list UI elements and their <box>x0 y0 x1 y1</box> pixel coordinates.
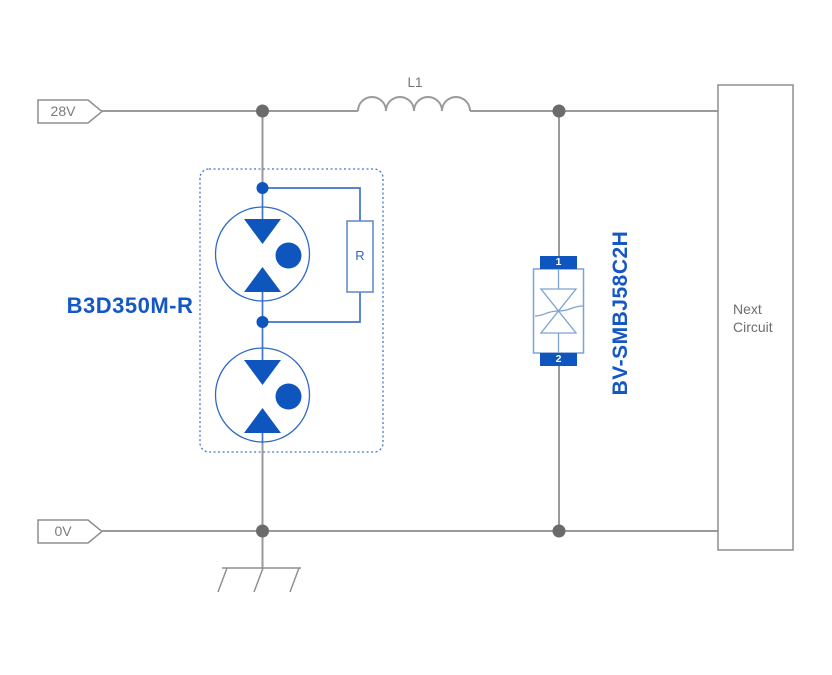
junction-dot <box>553 525 566 538</box>
gdt-dashed-outline <box>200 169 383 452</box>
gdt-node-dot-middle <box>257 316 269 328</box>
junction-dot <box>256 525 269 538</box>
ground-hatch-3 <box>290 568 299 592</box>
ground-hatch-1 <box>218 568 227 592</box>
tvs-part-number-label: BV-SMBJ58C2H <box>609 223 633 403</box>
spark-gap-symbol-1 <box>216 207 310 301</box>
resistor-wire-bottom <box>267 292 360 322</box>
inductor-label: L1 <box>399 75 431 90</box>
electrode-triangle-down <box>244 360 281 385</box>
inductor-symbol <box>358 97 470 111</box>
electrode-triangle-down <box>244 219 281 244</box>
circuit-schematic: 28V 0V L1 B3D350M-R R BV-SMBJ58C2H 1 2 N… <box>0 0 832 675</box>
tvs-diode-component <box>534 256 584 366</box>
next-circuit-label: Next Circuit <box>733 301 791 336</box>
resistor-label: R <box>347 248 373 263</box>
resistor-wire-top <box>267 188 360 221</box>
gdt-part-number-label: B3D350M-R <box>50 293 210 319</box>
ground-hatch-2 <box>254 568 263 592</box>
tvs-pin2-label: 2 <box>540 353 577 366</box>
electrode-triangle-up <box>244 267 281 292</box>
gdt-node-dot-top <box>257 182 269 194</box>
gas-discharge-tube-component <box>200 169 383 452</box>
junction-dot <box>553 105 566 118</box>
schematic-canvas <box>0 0 832 675</box>
net-label-0v: 0V <box>38 520 88 543</box>
junction-dot <box>256 105 269 118</box>
net-label-28v: 28V <box>38 100 88 123</box>
spark-gap-symbol-2 <box>216 348 310 442</box>
tvs-pin1-label: 1 <box>540 256 577 269</box>
gas-fill-dot <box>276 243 302 269</box>
gas-fill-dot <box>276 384 302 410</box>
electrode-triangle-up <box>244 408 281 433</box>
chassis-ground-symbol <box>218 531 301 592</box>
